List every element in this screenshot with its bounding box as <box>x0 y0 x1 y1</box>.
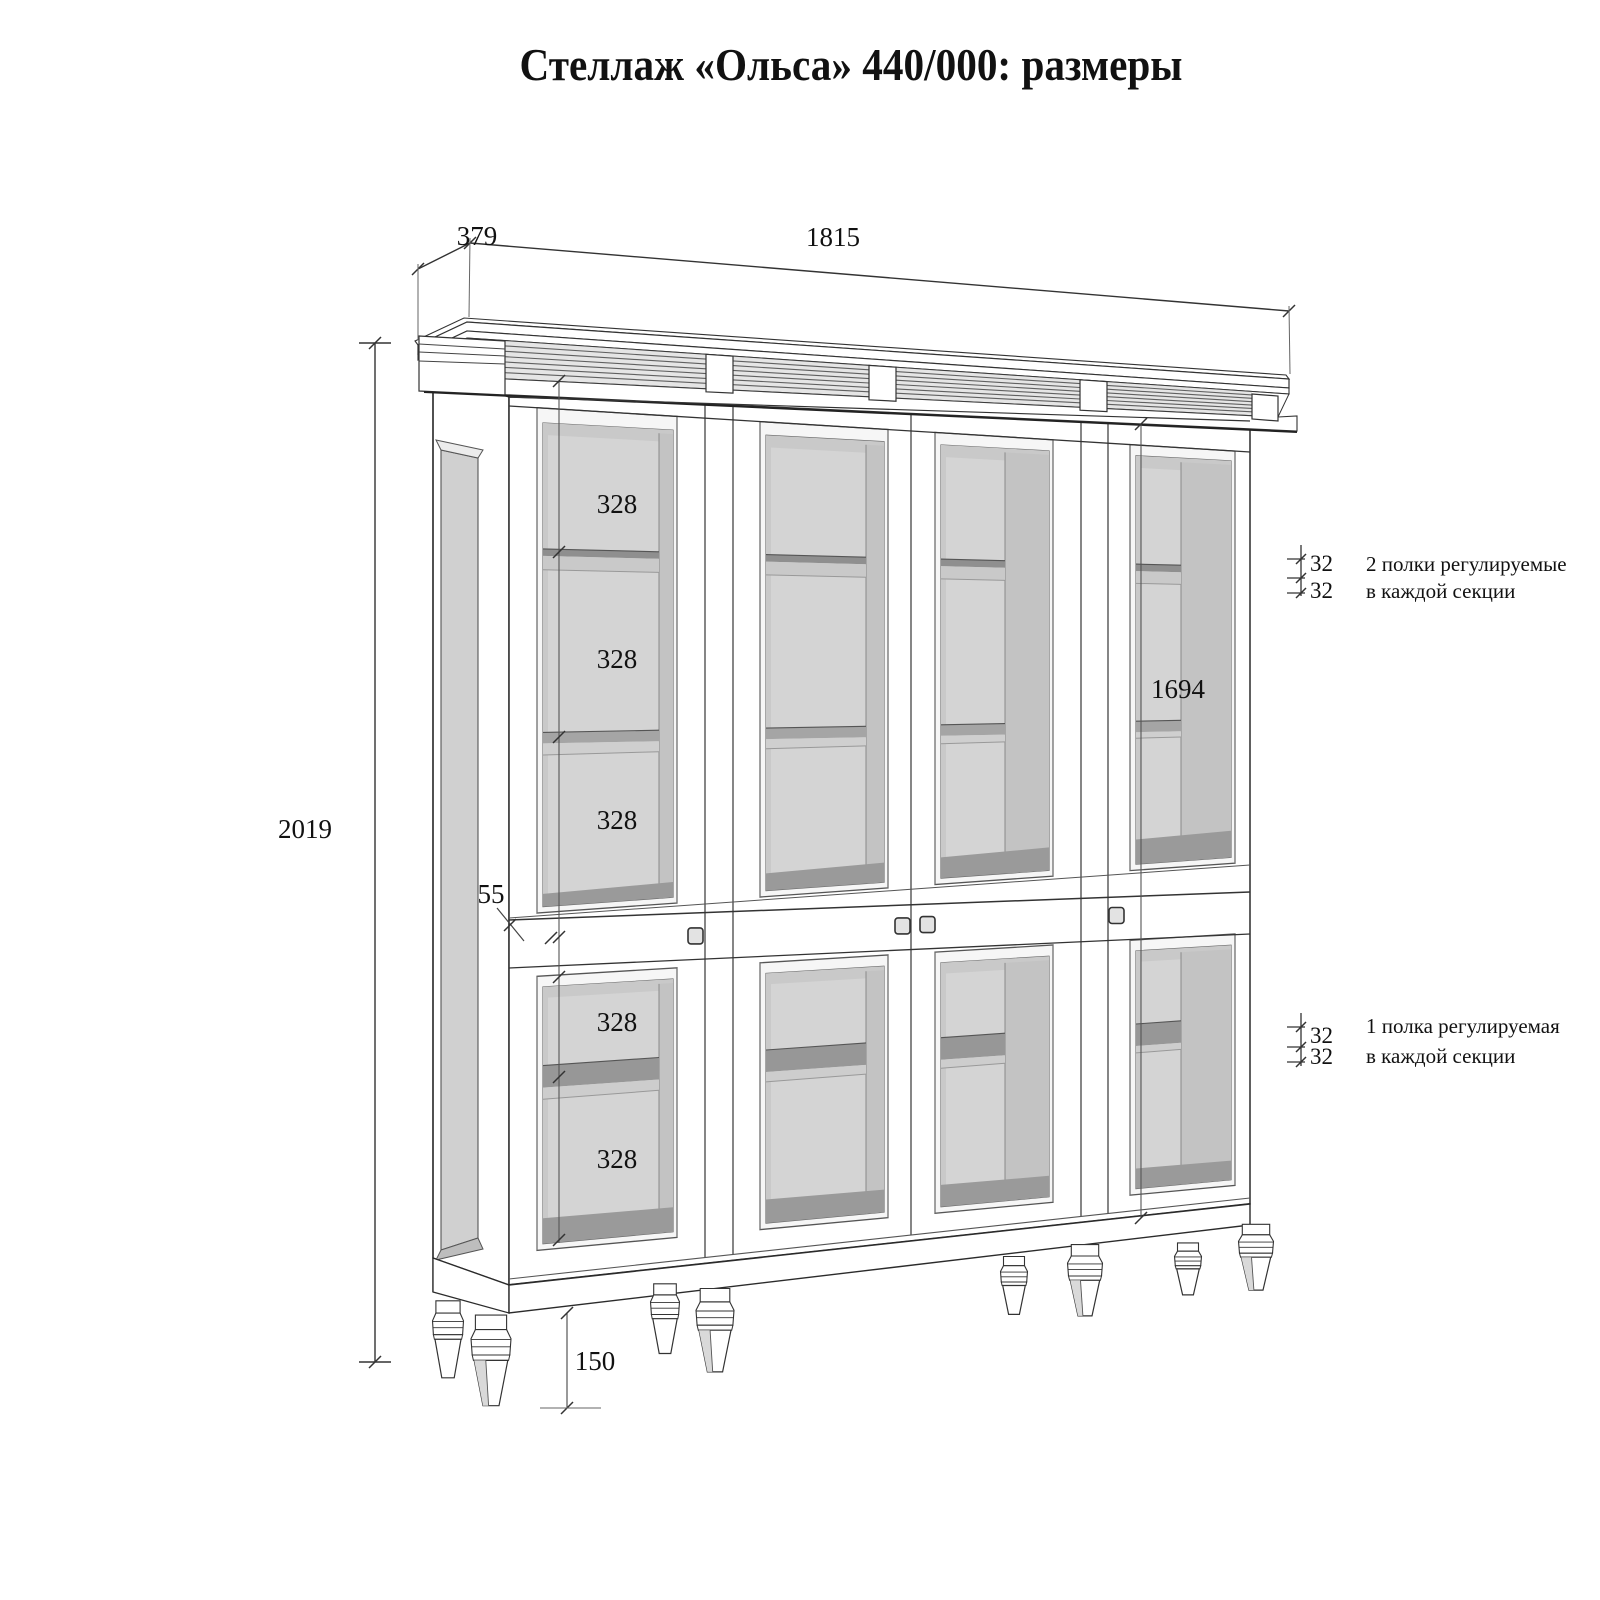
svg-text:328: 328 <box>597 1144 638 1174</box>
svg-text:32: 32 <box>1310 1044 1333 1069</box>
svg-text:2 полки регулируемые: 2 полки регулируемые <box>1366 552 1567 576</box>
svg-text:32: 32 <box>1310 578 1333 603</box>
svg-text:1 полка регулируемая: 1 полка регулируемая <box>1366 1014 1560 1038</box>
svg-text:в каждой секции: в каждой секции <box>1366 579 1515 603</box>
svg-text:150: 150 <box>575 1346 616 1376</box>
svg-text:1694: 1694 <box>1151 674 1206 704</box>
svg-text:Стеллаж «Ольса» 440/000: разм: Стеллаж «Ольса» 440/000: размеры <box>520 39 1183 90</box>
svg-text:1815: 1815 <box>806 222 860 252</box>
svg-text:328: 328 <box>597 644 638 674</box>
svg-text:379: 379 <box>457 221 498 251</box>
svg-text:в каждой секции: в каждой секции <box>1366 1044 1515 1068</box>
svg-text:55: 55 <box>478 879 505 909</box>
svg-text:2019: 2019 <box>278 814 332 844</box>
svg-text:32: 32 <box>1310 551 1333 576</box>
svg-text:328: 328 <box>597 489 638 519</box>
svg-text:328: 328 <box>597 1007 638 1037</box>
svg-text:328: 328 <box>597 805 638 835</box>
